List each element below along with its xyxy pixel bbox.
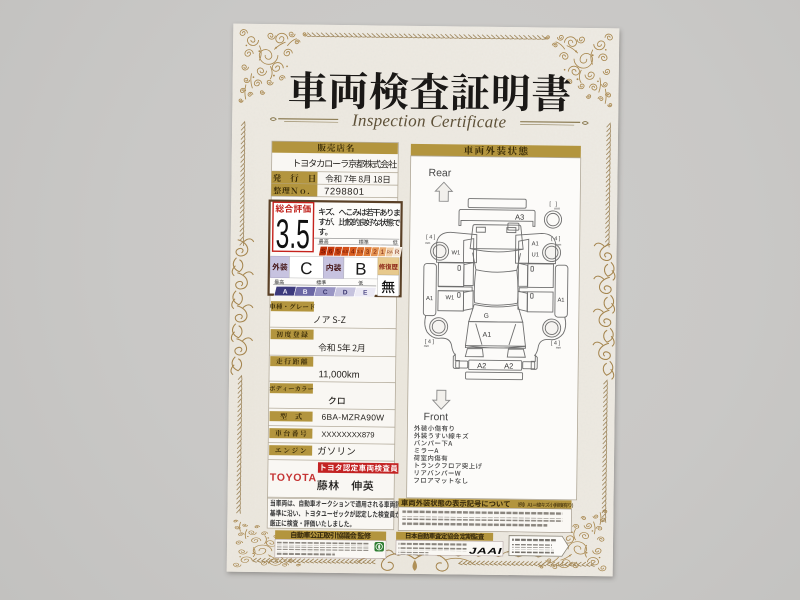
svg-text:D: D — [343, 289, 348, 296]
svg-text:W1: W1 — [452, 250, 461, 256]
svg-text:5: 5 — [336, 248, 340, 255]
svg-text:A2: A2 — [504, 361, 513, 370]
svg-text:B: B — [355, 260, 367, 279]
svg-text:XXXXXXXX879: XXXXXXXX879 — [321, 430, 374, 440]
svg-text:6: 6 — [329, 248, 333, 255]
svg-text:C: C — [300, 259, 313, 278]
svg-text:mm: mm — [424, 344, 430, 348]
svg-text:6BA-MZRA90W: 6BA-MZRA90W — [322, 412, 385, 423]
svg-text:A: A — [283, 289, 288, 296]
svg-text:A1: A1 — [557, 298, 564, 304]
svg-text:[ 4 ]: [ 4 ] — [426, 235, 436, 241]
svg-text:11,000km: 11,000km — [319, 369, 360, 381]
svg-text:R: R — [395, 249, 400, 256]
svg-text:W1: W1 — [445, 295, 454, 301]
svg-text:S: S — [321, 248, 325, 255]
svg-text:Rear: Rear — [428, 167, 451, 179]
svg-text:G: G — [484, 313, 489, 320]
svg-text:mm: mm — [425, 241, 431, 245]
svg-text:A1: A1 — [426, 296, 433, 302]
svg-text:C: C — [323, 289, 328, 296]
svg-text:4.5: 4.5 — [342, 249, 349, 254]
svg-text:B: B — [303, 289, 308, 296]
svg-text:4: 4 — [351, 249, 355, 256]
svg-text:1: 1 — [381, 249, 385, 256]
svg-text:U1: U1 — [532, 252, 539, 258]
svg-text:A1: A1 — [532, 241, 539, 247]
svg-text:3.5: 3.5 — [357, 249, 364, 254]
svg-text:mm: mm — [556, 346, 562, 350]
svg-text:mm: mm — [554, 207, 560, 211]
svg-text:Front: Front — [423, 411, 448, 423]
svg-text:RA: RA — [387, 249, 393, 254]
svg-text:A3: A3 — [515, 213, 524, 222]
svg-text:A1: A1 — [483, 332, 492, 339]
svg-text:A2: A2 — [477, 361, 486, 370]
svg-text:Inspection Certificate: Inspection Certificate — [351, 111, 507, 132]
svg-text:2: 2 — [373, 249, 377, 256]
svg-text:3.5: 3.5 — [275, 211, 310, 257]
svg-text:JAAI: JAAI — [469, 547, 503, 557]
svg-text:TOYOTA: TOYOTA — [270, 472, 317, 485]
svg-text:7298801: 7298801 — [324, 186, 365, 197]
svg-text:E: E — [363, 290, 368, 297]
svg-text:3: 3 — [366, 249, 370, 256]
